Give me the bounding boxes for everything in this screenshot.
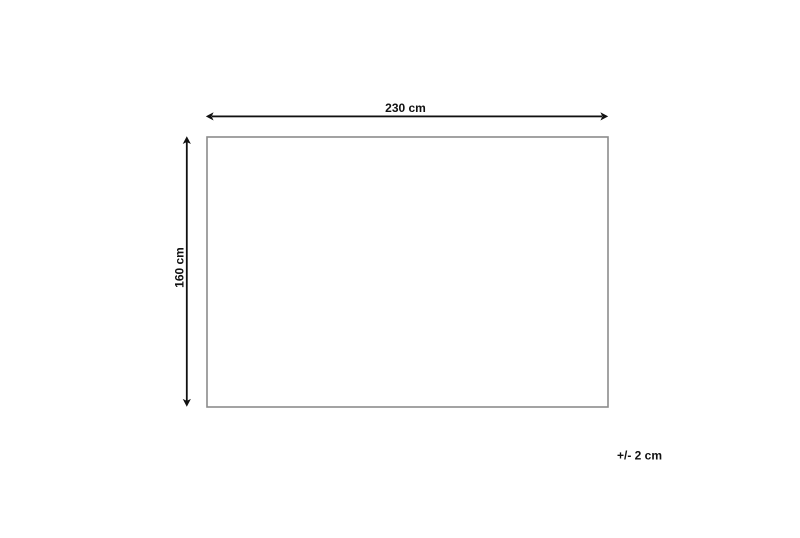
svg-text:230 cm: 230 cm [385, 101, 426, 115]
svg-text:+/- 2 cm: +/- 2 cm [617, 449, 662, 463]
svg-text:160 cm: 160 cm [173, 247, 187, 288]
